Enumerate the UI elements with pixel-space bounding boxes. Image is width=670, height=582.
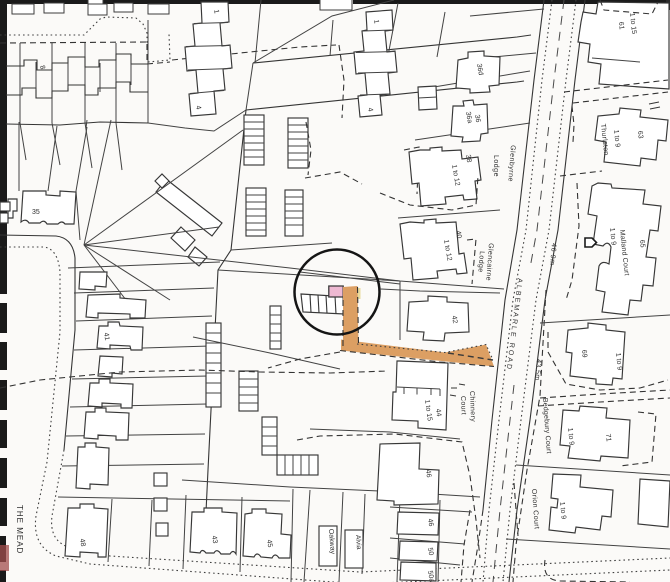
svg-text:Lodge: Lodge [477, 251, 485, 273]
svg-text:38: 38 [464, 154, 472, 163]
svg-text:50: 50 [426, 547, 434, 556]
svg-text:46: 46 [424, 469, 432, 478]
svg-text:46: 46 [426, 518, 434, 527]
svg-text:42: 42 [450, 315, 458, 324]
svg-text:71: 71 [604, 433, 612, 442]
svg-text:Alvia: Alvia [354, 535, 362, 550]
svg-text:Court: Court [459, 396, 467, 415]
svg-text:Chinnery: Chinnery [468, 391, 476, 423]
svg-text:Lodge: Lodge [492, 155, 499, 177]
svg-text:44: 44 [434, 408, 442, 417]
svg-text:43: 43 [210, 535, 218, 544]
svg-text:45: 45 [265, 539, 273, 548]
svg-text:61: 61 [617, 21, 625, 30]
svg-text:65: 65 [638, 239, 646, 248]
svg-text:THE MEAD: THE MEAD [15, 505, 24, 554]
svg-text:41: 41 [102, 332, 110, 341]
svg-text:35: 35 [32, 209, 40, 216]
svg-text:63: 63 [636, 130, 644, 139]
svg-text:36: 36 [473, 114, 481, 123]
svg-text:48: 48 [78, 538, 86, 547]
svg-text:69: 69 [580, 349, 588, 358]
svg-text:40: 40 [454, 230, 462, 239]
